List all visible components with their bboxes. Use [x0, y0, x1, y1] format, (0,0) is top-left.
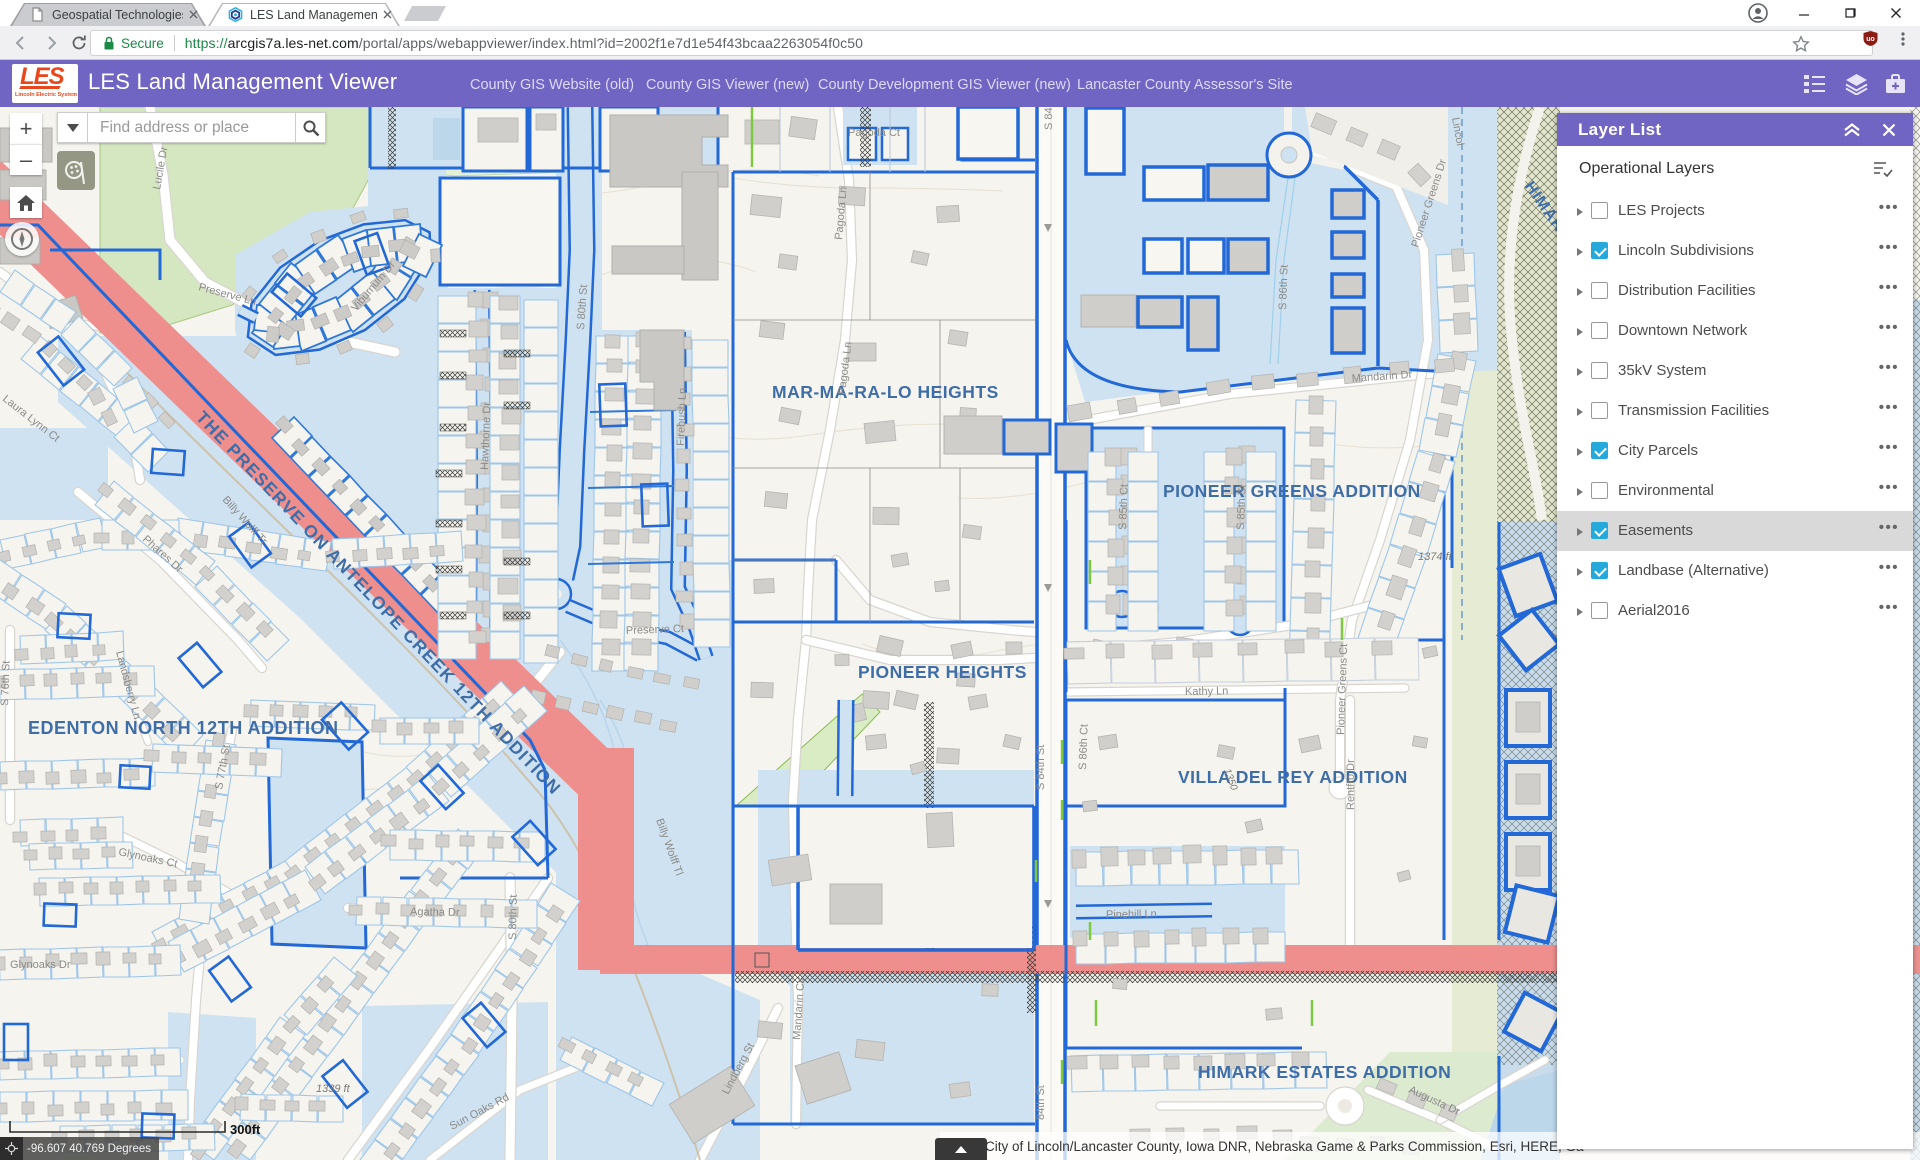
svg-text:Pinehill Ln: Pinehill Ln: [1106, 908, 1157, 921]
svg-text:1374 ft: 1374 ft: [1418, 551, 1453, 563]
svg-text:S 85th Ct: S 85th Ct: [1117, 484, 1131, 530]
svg-text:EDENTON NORTH 12TH ADDITION: EDENTON NORTH 12TH ADDITION: [28, 718, 339, 738]
svg-text:VILLA DEL REY ADDITION: VILLA DEL REY ADDITION: [1178, 767, 1408, 787]
svg-text:Pagoda Ct: Pagoda Ct: [848, 127, 900, 139]
svg-text:S 84t: S 84t: [1043, 104, 1055, 130]
svg-text:S 85th St: S 85th St: [1235, 484, 1249, 530]
svg-text:HIMARK ESTATES ADDITION: HIMARK ESTATES ADDITION: [1198, 1062, 1451, 1082]
svg-text:S 84th St: S 84th St: [1035, 745, 1047, 790]
svg-text:Agatha Dr: Agatha Dr: [410, 906, 460, 919]
svg-text:Firebush Ln: Firebush Ln: [675, 388, 689, 446]
svg-text:84th St: 84th St: [1035, 1085, 1047, 1120]
svg-text:Kathy Ln: Kathy Ln: [1185, 685, 1229, 698]
svg-text:PIONEER HEIGHTS: PIONEER HEIGHTS: [858, 662, 1027, 682]
svg-text:Glynoaks Dr: Glynoaks Dr: [10, 959, 71, 971]
svg-text:PIONEER GREENS ADDITION: PIONEER GREENS ADDITION: [1163, 481, 1421, 501]
svg-text:Hawthorne Dr: Hawthorne Dr: [479, 402, 493, 471]
svg-text:S 86th St: S 86th St: [1277, 264, 1291, 310]
svg-text:300ft: 300ft: [230, 1122, 261, 1137]
svg-text:Rentfro Dr: Rentfro Dr: [1345, 759, 1357, 810]
svg-text:Preserve Ct: Preserve Ct: [626, 623, 684, 637]
svg-text:S 86th Ct: S 86th Ct: [1077, 724, 1091, 770]
svg-text:S 76th St: S 76th St: [0, 660, 13, 706]
svg-text:S 80th St: S 80th St: [507, 895, 520, 940]
svg-text:MAR-MA-RA-LO HEIGHTS: MAR-MA-RA-LO HEIGHTS: [772, 382, 999, 402]
svg-text:uo: uo: [1866, 36, 1875, 43]
svg-text:1339 ft: 1339 ft: [316, 1083, 351, 1095]
